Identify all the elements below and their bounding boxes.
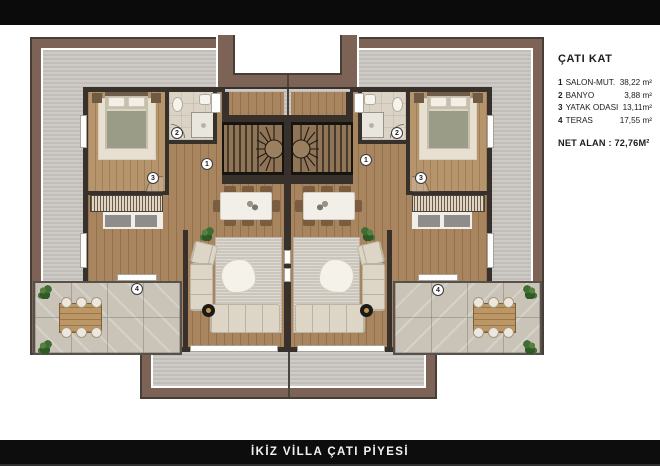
shower	[191, 112, 215, 138]
stair-wall	[222, 115, 284, 122]
window-right-wall	[487, 115, 494, 148]
toilet	[172, 97, 183, 112]
stair-landing	[222, 175, 284, 184]
sink	[364, 94, 376, 105]
terrace-chair	[91, 297, 102, 308]
window-left-wall	[80, 115, 87, 148]
legend-row: 2 BANYO 3,88 m²	[558, 90, 652, 103]
side-table	[202, 304, 215, 317]
marker-yatak-odasi: 3	[415, 172, 427, 184]
side-table	[360, 304, 373, 317]
salon-door-left	[190, 345, 278, 352]
legend: ÇATI KAT 1 SALON-MUT. 38,22 m² 2 BANYO 3…	[558, 53, 652, 148]
plant	[38, 340, 52, 354]
terrace-door-left	[117, 274, 157, 281]
dining-chair	[354, 200, 362, 212]
party-wall-line-recess	[287, 89, 289, 115]
terrace-chair	[503, 327, 514, 338]
marker-banyo: 2	[171, 127, 183, 139]
legend-room-number: 4	[558, 115, 563, 128]
nightstand	[473, 93, 483, 103]
window-left-wall	[80, 233, 87, 268]
kitchen-counter	[412, 212, 472, 229]
dining-chair	[272, 200, 280, 212]
bathroom-wall	[169, 140, 217, 144]
legend-room-area: 3,88 m²	[624, 90, 652, 103]
sofa-horizontal	[210, 304, 280, 333]
legend-net-area: NET ALAN : 72,76M²	[558, 138, 652, 148]
bed-pillow	[128, 97, 145, 107]
salon-west-wall	[183, 230, 188, 347]
legend-room-label: BANYO	[566, 90, 595, 103]
plant	[523, 340, 537, 354]
terrace-chair	[473, 327, 484, 338]
coffee-table	[221, 259, 256, 293]
party-wall-line-eave	[288, 347, 290, 397]
terrace-chair	[91, 327, 102, 338]
stair-hall-window	[354, 93, 364, 113]
legend-title: ÇATI KAT	[558, 53, 652, 65]
bed-blanket	[429, 109, 468, 148]
terrace-chair	[473, 297, 484, 308]
legend-row: 4 TERAS 17,55 m²	[558, 115, 652, 128]
shower	[360, 112, 384, 138]
party-wall-door	[284, 250, 291, 264]
sofa-horizontal	[295, 304, 365, 333]
party-wall-door	[284, 268, 291, 282]
stair-hall-window	[211, 93, 221, 113]
stair-wall	[291, 115, 353, 122]
bed-headboard	[105, 92, 148, 96]
marker-banyo: 2	[391, 127, 403, 139]
stair-landing	[291, 175, 353, 184]
legend-room-label: TERAS	[566, 115, 593, 128]
nightstand	[151, 93, 161, 103]
floor-plan-page: 1 1 2 2 3 3 4 4 ÇATI KAT 1 SALON-MUT. 38…	[0, 0, 660, 466]
terrace-left	[33, 281, 182, 355]
terrace-right	[393, 281, 542, 355]
top-black-bar	[0, 0, 660, 25]
marker-teras: 4	[131, 283, 143, 295]
bed	[427, 92, 470, 149]
dining-chair	[295, 200, 303, 212]
terrace-chair	[61, 327, 72, 338]
staircase	[222, 122, 284, 175]
legend-room-area: 38,22 m²	[620, 77, 652, 90]
legend-room-area: 17,55 m²	[620, 115, 652, 128]
terrace-chair	[488, 297, 499, 308]
marker-teras: 4	[432, 284, 444, 296]
shower-drain	[369, 123, 374, 128]
terrace-chair	[488, 327, 499, 338]
plant	[200, 227, 214, 241]
salon-door-right	[297, 345, 385, 352]
kitchen-appliance	[135, 215, 157, 227]
plant	[38, 285, 52, 299]
legend-room-number: 3	[558, 102, 563, 115]
plant	[523, 285, 537, 299]
marker-salon: 1	[201, 158, 213, 170]
bed-pillow	[430, 97, 447, 107]
bed-pillow	[450, 97, 467, 107]
nightstand	[92, 93, 102, 103]
bed-pillow	[108, 97, 125, 107]
dining-table	[220, 192, 272, 220]
legend-room-label: YATAK ODASI	[566, 102, 619, 115]
toilet	[392, 97, 403, 112]
marker-salon: 1	[360, 154, 372, 166]
terrace-door-right	[418, 274, 458, 281]
nightstand	[414, 93, 424, 103]
legend-row: 1 SALON-MUT. 38,22 m²	[558, 77, 652, 90]
bathroom-wall	[358, 140, 406, 144]
floor-plan: 1 1 2 2 3 3 4 4	[30, 35, 544, 405]
wardrobe	[90, 195, 163, 212]
terrace-chair	[503, 297, 514, 308]
bed-blanket	[107, 109, 146, 148]
bedroom-wall	[406, 92, 410, 195]
window-right-wall	[487, 233, 494, 268]
wardrobe	[412, 195, 485, 212]
kitchen-appliance	[444, 215, 470, 227]
kitchen-counter	[103, 212, 163, 229]
legend-room-number: 2	[558, 90, 563, 103]
plan-title: İKİZ VİLLA ÇATI PİYESİ	[251, 446, 409, 458]
bed-headboard	[427, 92, 470, 96]
terrace-chair	[76, 297, 87, 308]
footer-title-bar: İKİZ VİLLA ÇATI PİYESİ	[0, 440, 660, 466]
terrace-chair	[76, 327, 87, 338]
terrace-chair	[61, 297, 72, 308]
kitchen-appliance	[418, 215, 440, 227]
plant	[361, 227, 375, 241]
shower-drain	[201, 123, 206, 128]
dining-table	[303, 192, 355, 220]
roof-notch	[233, 35, 342, 75]
legend-room-label: SALON-MUT.	[566, 77, 616, 90]
legend-row: 3 YATAK ODASI 13,11m²	[558, 102, 652, 115]
kitchen-appliance	[105, 215, 131, 227]
bed	[105, 92, 148, 149]
legend-room-number: 1	[558, 77, 563, 90]
coffee-table	[319, 259, 354, 293]
sink	[199, 94, 211, 105]
marker-yatak-odasi: 3	[147, 172, 159, 184]
salon-west-wall	[387, 230, 392, 347]
legend-room-area: 13,11m²	[623, 102, 652, 115]
staircase	[291, 122, 353, 175]
